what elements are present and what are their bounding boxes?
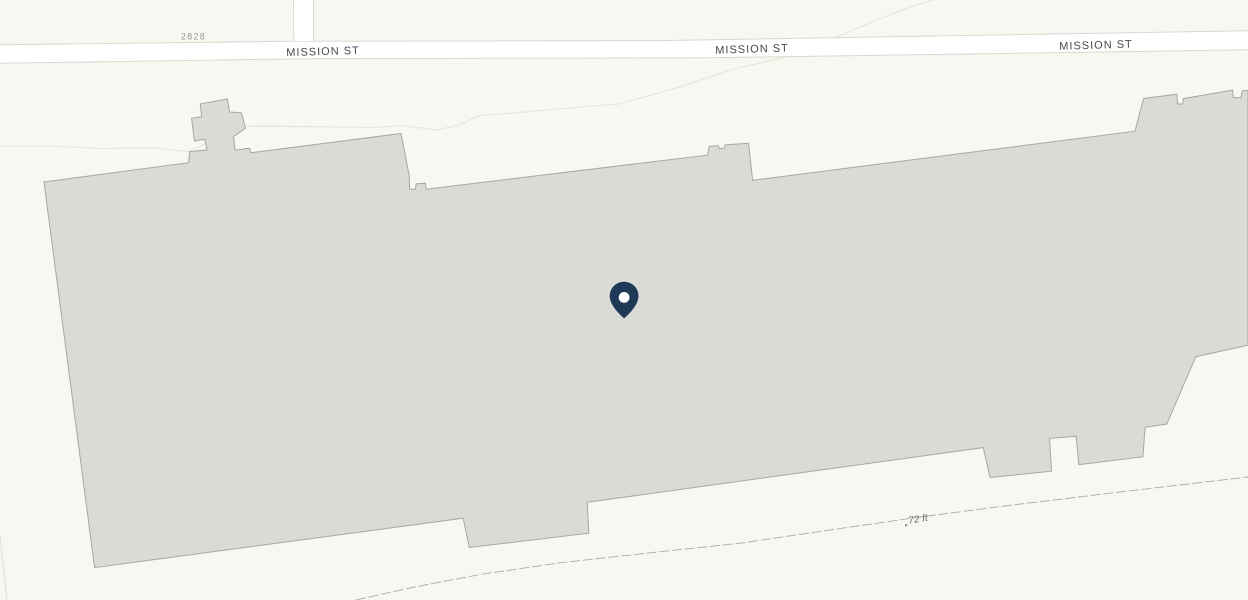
svg-text:2828: 2828 xyxy=(181,32,206,42)
svg-text:MISSION ST: MISSION ST xyxy=(286,45,360,59)
svg-text:MISSION ST: MISSION ST xyxy=(1059,39,1133,53)
svg-text:MISSION ST: MISSION ST xyxy=(715,42,789,56)
